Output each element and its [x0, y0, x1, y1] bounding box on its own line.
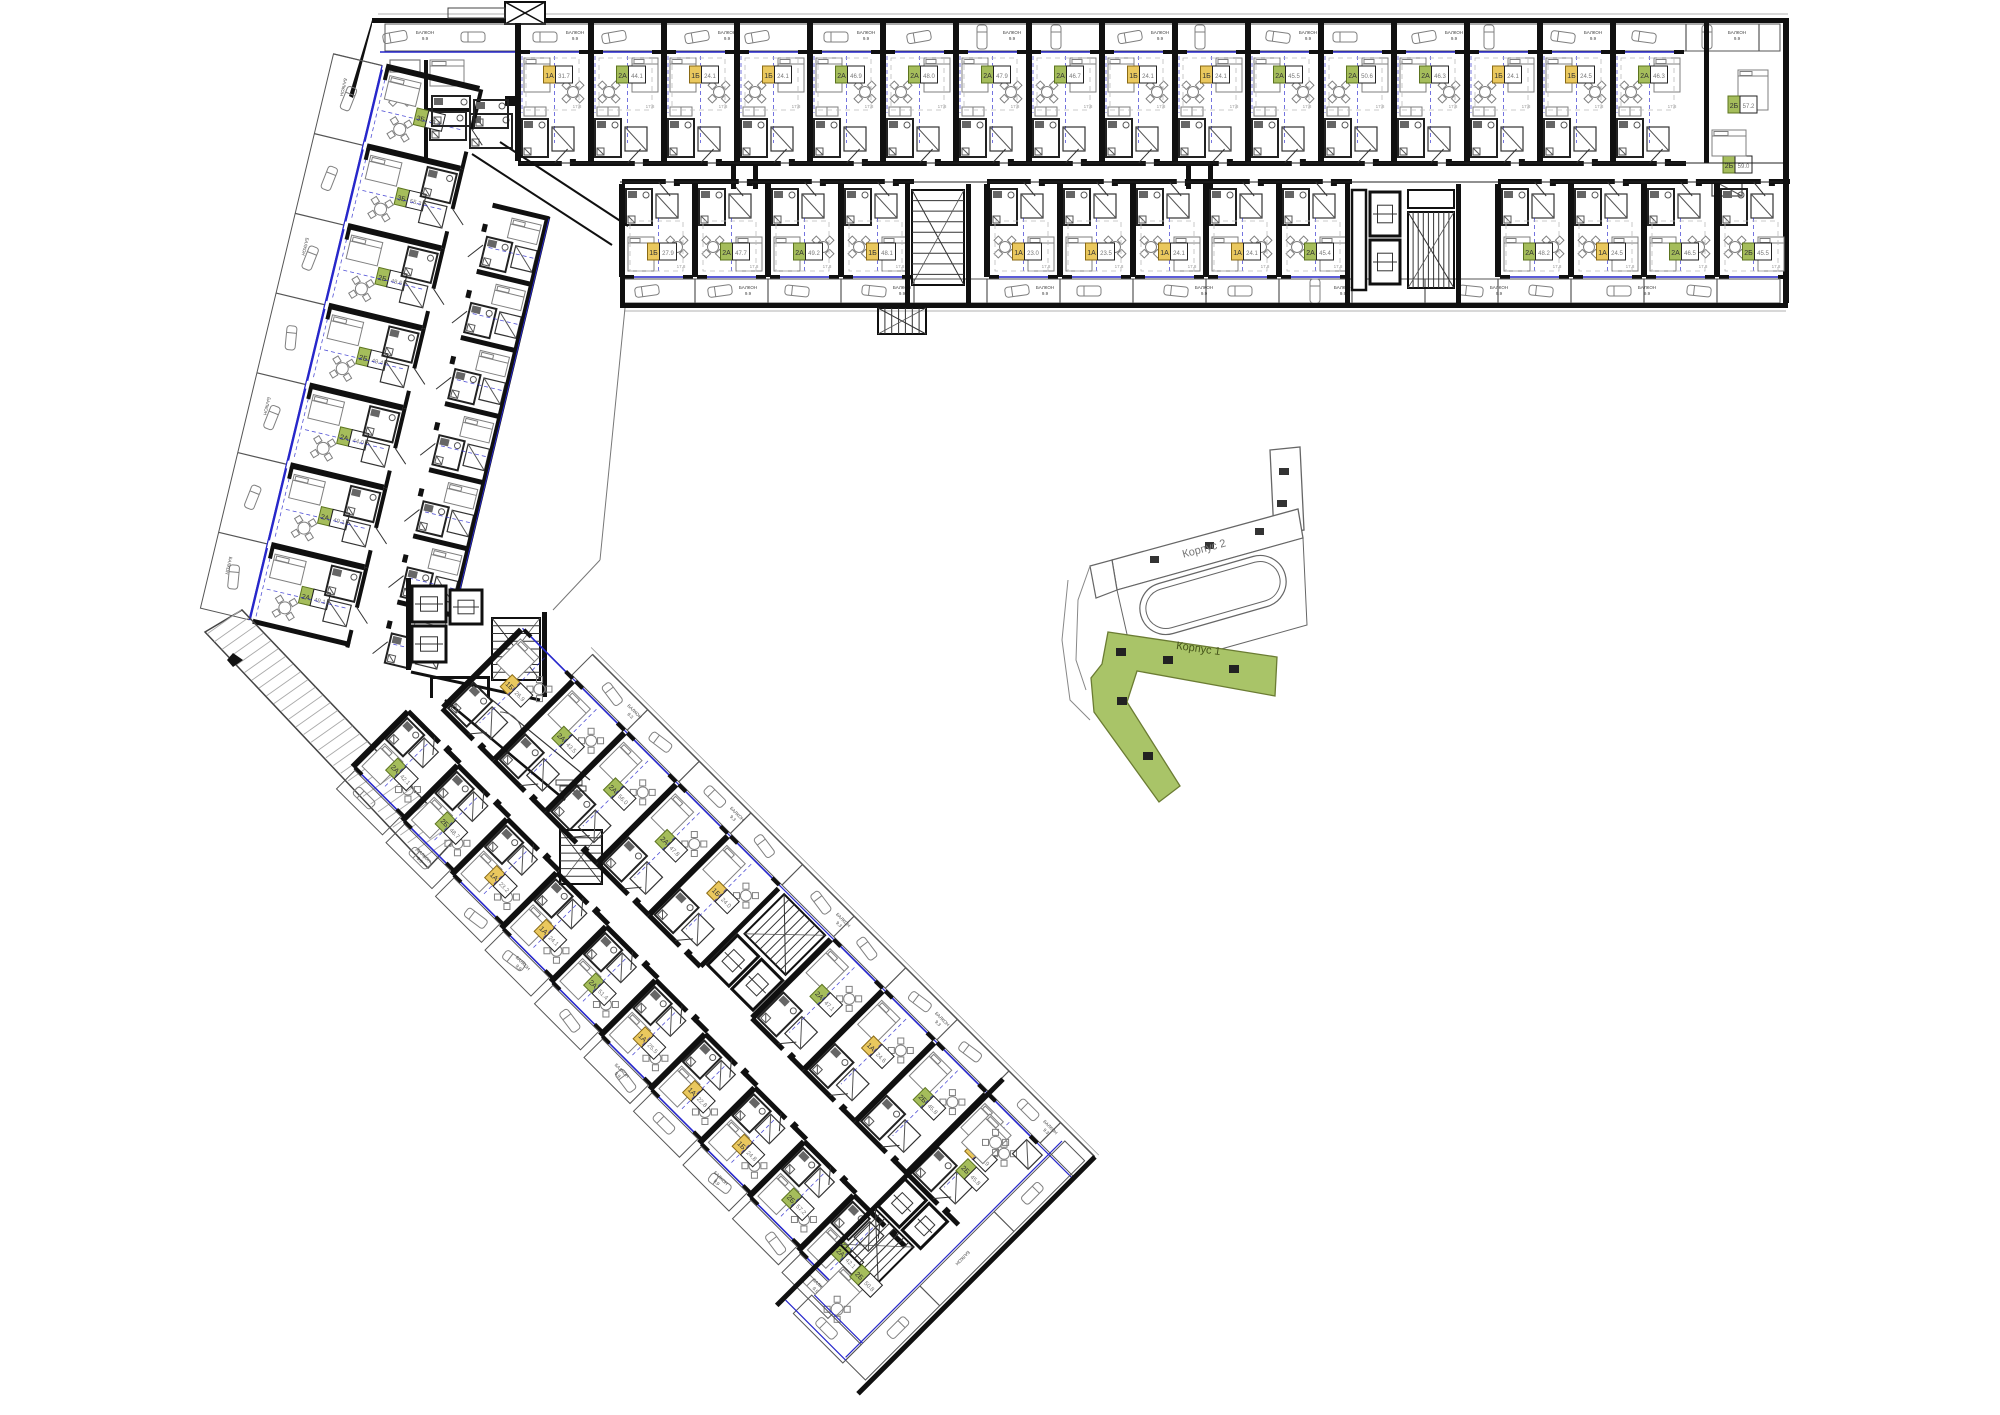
svg-text:2А: 2А: [983, 73, 992, 80]
svg-text:45.5: 45.5: [1288, 74, 1300, 80]
svg-text:БАЛКОН: БАЛКОН: [1195, 285, 1213, 290]
svg-text:17.8: 17.8: [1115, 264, 1124, 269]
svg-text:9.9: 9.9: [1305, 36, 1312, 41]
svg-text:17.8: 17.8: [1188, 264, 1197, 269]
svg-text:2А: 2А: [1056, 73, 1065, 80]
svg-text:9.9: 9.9: [1042, 291, 1049, 296]
svg-text:9.9: 9.9: [1009, 36, 1016, 41]
svg-text:2Б: 2Б: [1725, 163, 1734, 170]
svg-text:24.1: 24.1: [777, 74, 789, 80]
svg-text:9.9: 9.9: [1590, 36, 1597, 41]
svg-text:2А: 2А: [837, 73, 846, 80]
svg-text:9.9: 9.9: [899, 291, 906, 296]
svg-text:1А: 1А: [545, 73, 554, 80]
svg-text:17.8: 17.8: [792, 104, 801, 109]
svg-text:17.8: 17.8: [1772, 264, 1781, 269]
svg-text:2А: 2А: [618, 73, 627, 80]
svg-text:9.9: 9.9: [1644, 291, 1651, 296]
svg-text:57.2: 57.2: [1743, 104, 1755, 110]
svg-text:17.8: 17.8: [1522, 104, 1531, 109]
svg-text:46.9: 46.9: [850, 74, 862, 80]
svg-text:24.1: 24.1: [1173, 251, 1185, 257]
svg-text:46.5: 46.5: [1684, 251, 1696, 257]
svg-text:24.1: 24.1: [1142, 74, 1154, 80]
svg-text:9.9: 9.9: [745, 291, 752, 296]
svg-text:17.8: 17.8: [1011, 104, 1020, 109]
svg-text:17.8: 17.8: [719, 104, 728, 109]
svg-text:9.9: 9.9: [1451, 36, 1458, 41]
svg-text:БАЛКОН: БАЛКОН: [1036, 285, 1054, 290]
svg-text:17.8: 17.8: [1261, 264, 1270, 269]
svg-text:БАЛКОН: БАЛКОН: [1299, 30, 1317, 35]
svg-text:1А: 1А: [1160, 250, 1169, 257]
svg-text:17.8: 17.8: [677, 264, 686, 269]
svg-text:2А: 2А: [910, 73, 919, 80]
svg-text:17.8: 17.8: [1376, 104, 1385, 109]
svg-text:БАЛКОН: БАЛКОН: [1003, 30, 1021, 35]
svg-text:1Б: 1Б: [764, 73, 773, 80]
svg-text:46.7: 46.7: [1069, 74, 1081, 80]
svg-text:9.9: 9.9: [1157, 36, 1164, 41]
svg-text:17.8: 17.8: [1303, 104, 1312, 109]
svg-text:24.5: 24.5: [1580, 74, 1592, 80]
svg-text:БАЛКОН: БАЛКОН: [1490, 285, 1508, 290]
svg-text:1Б: 1Б: [1494, 73, 1503, 80]
svg-text:9.9: 9.9: [724, 36, 731, 41]
svg-text:1Б: 1Б: [868, 250, 877, 257]
svg-text:2А: 2А: [795, 250, 804, 257]
svg-text:17.8: 17.8: [1084, 104, 1093, 109]
svg-text:БАЛКОН: БАЛКОН: [1445, 30, 1463, 35]
svg-text:БАЛКОН: БАЛКОН: [416, 30, 434, 35]
svg-text:24.1: 24.1: [704, 74, 716, 80]
svg-text:1Б: 1Б: [649, 250, 658, 257]
svg-text:17.8: 17.8: [750, 264, 759, 269]
svg-text:1А: 1А: [1233, 250, 1242, 257]
svg-text:1Б: 1Б: [1202, 73, 1211, 80]
svg-text:24.1: 24.1: [1246, 251, 1258, 257]
svg-text:2А: 2А: [1275, 73, 1284, 80]
svg-text:БАЛКОН: БАЛКОН: [718, 30, 736, 35]
svg-text:2А: 2А: [1640, 73, 1649, 80]
svg-text:БАЛКОН: БАЛКОН: [857, 30, 875, 35]
svg-text:17.8: 17.8: [1157, 104, 1166, 109]
svg-text:46.3: 46.3: [1653, 74, 1665, 80]
svg-text:БАЛКОН: БАЛКОН: [1638, 285, 1656, 290]
svg-text:17.8: 17.8: [896, 264, 905, 269]
svg-text:17.8: 17.8: [573, 104, 582, 109]
svg-text:17.8: 17.8: [1553, 264, 1562, 269]
svg-text:17.8: 17.8: [938, 104, 947, 109]
svg-text:9.9: 9.9: [422, 36, 429, 41]
svg-text:23.5: 23.5: [1100, 251, 1112, 257]
svg-text:27.9: 27.9: [662, 251, 674, 257]
svg-text:БАЛКОН: БАЛКОН: [566, 30, 584, 35]
svg-text:45.5: 45.5: [1757, 251, 1769, 257]
svg-text:31.7: 31.7: [558, 74, 570, 80]
svg-text:47.9: 47.9: [996, 74, 1008, 80]
svg-text:47.7: 47.7: [735, 251, 747, 257]
svg-text:1А: 1А: [1087, 250, 1096, 257]
svg-text:17.8: 17.8: [865, 104, 874, 109]
svg-text:17.8: 17.8: [1699, 264, 1708, 269]
svg-text:24.5: 24.5: [1611, 251, 1623, 257]
svg-text:50.6: 50.6: [1361, 74, 1373, 80]
svg-text:17.8: 17.8: [1230, 104, 1239, 109]
svg-text:1А: 1А: [1598, 250, 1607, 257]
svg-text:БАЛКОН: БАЛКОН: [739, 285, 757, 290]
svg-text:17.8: 17.8: [1595, 104, 1604, 109]
svg-text:2А: 2А: [1348, 73, 1357, 80]
svg-text:49.2: 49.2: [808, 251, 820, 257]
svg-text:2А: 2А: [722, 250, 731, 257]
svg-text:1А: 1А: [1014, 250, 1023, 257]
svg-text:БАЛКОН: БАЛКОН: [1728, 30, 1746, 35]
svg-text:48.2: 48.2: [1538, 251, 1550, 257]
svg-text:48.1: 48.1: [881, 251, 893, 257]
svg-text:17.8: 17.8: [1668, 104, 1677, 109]
svg-text:2Б: 2Б: [1730, 103, 1739, 110]
svg-text:1Б: 1Б: [1129, 73, 1138, 80]
svg-text:1Б: 1Б: [1567, 73, 1576, 80]
svg-text:48.0: 48.0: [923, 74, 935, 80]
svg-text:2А: 2А: [1671, 250, 1680, 257]
svg-text:2А: 2А: [1306, 250, 1315, 257]
svg-text:24.1: 24.1: [1215, 74, 1227, 80]
svg-text:9.9: 9.9: [1734, 36, 1741, 41]
svg-text:45.4: 45.4: [1319, 251, 1331, 257]
svg-text:17.8: 17.8: [823, 264, 832, 269]
svg-text:2А: 2А: [1421, 73, 1430, 80]
svg-text:2Б: 2Б: [1744, 250, 1753, 257]
svg-text:9.9: 9.9: [572, 36, 579, 41]
svg-text:46.3: 46.3: [1434, 74, 1446, 80]
svg-text:23.0: 23.0: [1027, 251, 1039, 257]
svg-text:17.8: 17.8: [1626, 264, 1635, 269]
svg-text:9.9: 9.9: [1496, 291, 1503, 296]
svg-text:59.0: 59.0: [1738, 164, 1750, 170]
svg-text:9.9: 9.9: [863, 36, 870, 41]
svg-text:БАЛКОН: БАЛКОН: [1584, 30, 1602, 35]
svg-text:24.1: 24.1: [1507, 74, 1519, 80]
svg-text:17.8: 17.8: [1042, 264, 1051, 269]
svg-text:2А: 2А: [1525, 250, 1534, 257]
svg-text:1Б: 1Б: [691, 73, 700, 80]
svg-text:44.1: 44.1: [631, 74, 643, 80]
svg-text:БАЛКОН: БАЛКОН: [1151, 30, 1169, 35]
svg-text:17.8: 17.8: [1334, 264, 1343, 269]
svg-text:9.9: 9.9: [1201, 291, 1208, 296]
svg-text:17.8: 17.8: [1449, 104, 1458, 109]
svg-text:17.8: 17.8: [646, 104, 655, 109]
